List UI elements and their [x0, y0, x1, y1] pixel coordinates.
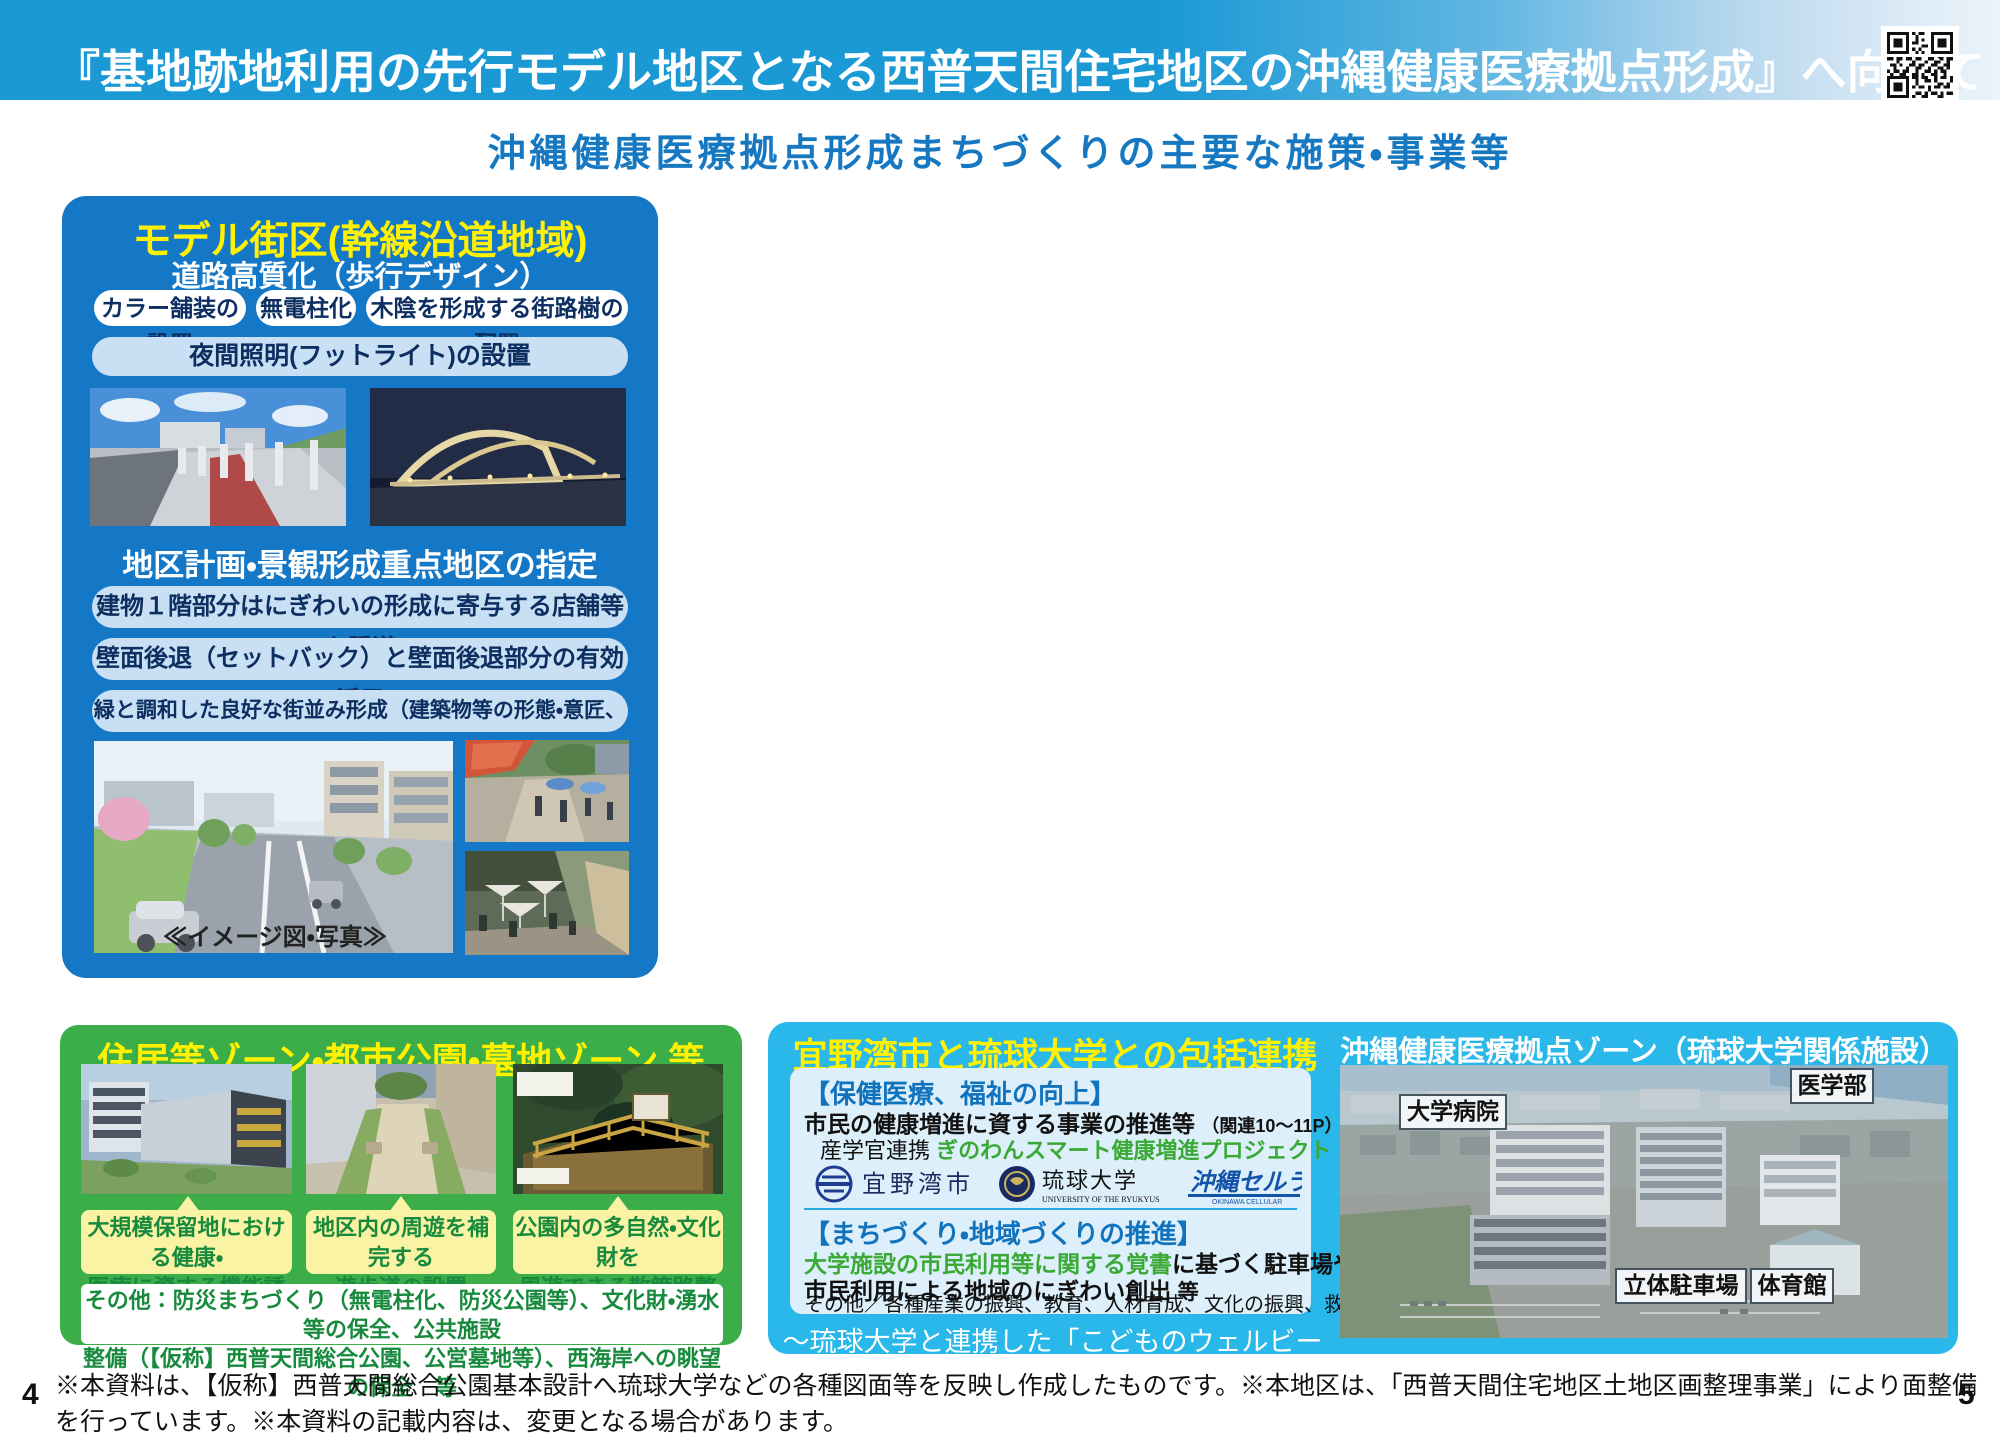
svg-text:琉球大学: 琉球大学	[1042, 1168, 1138, 1193]
svg-text:UNIVERSITY OF THE RYUKYUS: UNIVERSITY OF THE RYUKYUS	[1042, 1195, 1160, 1204]
svg-text:宜野湾市: 宜野湾市	[862, 1171, 974, 1198]
svg-text:OKINAWA CELLULAR: OKINAWA CELLULAR	[1212, 1199, 1282, 1206]
svg-text:沖縄セルラー: 沖縄セルラー	[1190, 1169, 1302, 1196]
